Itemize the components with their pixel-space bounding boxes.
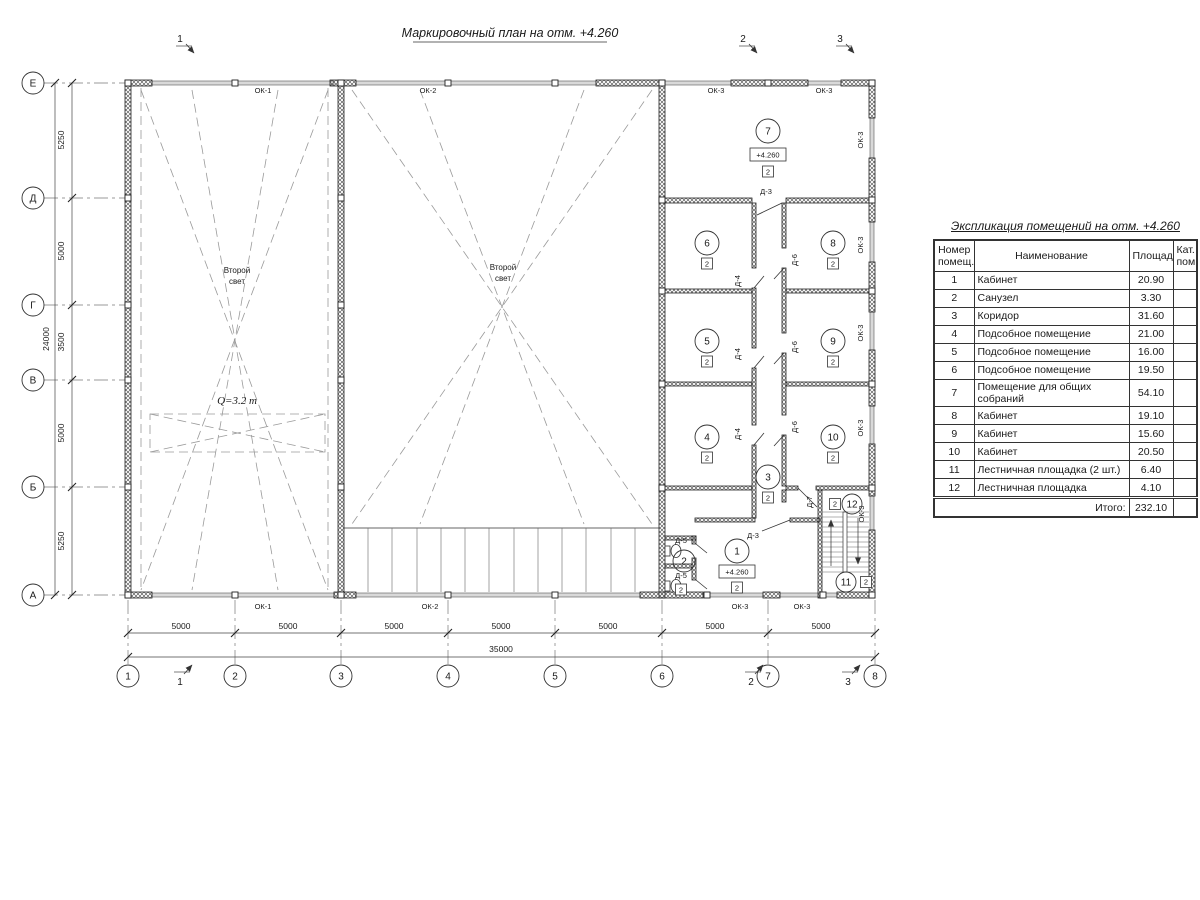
dim-label: 5000 bbox=[172, 621, 191, 631]
window-label-ok2: ОК-2 bbox=[422, 602, 439, 611]
room-cat-cell bbox=[1173, 461, 1197, 479]
dim-label: 5000 bbox=[56, 241, 66, 260]
room-number: 9 bbox=[830, 337, 836, 348]
room-category: 2 bbox=[864, 578, 868, 587]
axis-label: А bbox=[30, 591, 37, 602]
room-name-cell: Помещение для общих собраний bbox=[974, 380, 1129, 407]
axis-label: 7 bbox=[765, 672, 771, 683]
window-label-ok3: ОК-3 bbox=[794, 602, 811, 611]
room-num-cell: 11 bbox=[934, 461, 974, 479]
room-category: 2 bbox=[833, 500, 837, 509]
room-cat-cell bbox=[1173, 425, 1197, 443]
room-area-cell: 31.60 bbox=[1129, 308, 1173, 326]
room-category: 2 bbox=[705, 260, 709, 269]
grid-lines bbox=[44, 83, 875, 666]
room-name-cell: Кабинет bbox=[974, 443, 1129, 461]
elevation-mark: +4.260 bbox=[756, 151, 779, 160]
room-cat-cell bbox=[1173, 326, 1197, 344]
door-label-d6: Д-6 bbox=[790, 254, 799, 266]
room-area-cell: 3.30 bbox=[1129, 290, 1173, 308]
col-header-number: Номер помещ. bbox=[934, 240, 974, 272]
room-name-cell: Санузел bbox=[974, 290, 1129, 308]
second-light-label: Второй bbox=[224, 266, 250, 275]
section-mark-label: 2 bbox=[740, 34, 746, 45]
room-category: 2 bbox=[705, 358, 709, 367]
total-cat-cell bbox=[1173, 498, 1197, 518]
window-label-ok3: ОК-3 bbox=[856, 325, 865, 342]
dim-label: 5250 bbox=[56, 130, 66, 149]
axis-label: Е bbox=[30, 79, 37, 90]
room-num-cell: 4 bbox=[934, 326, 974, 344]
dim-label: 5250 bbox=[56, 531, 66, 550]
room-name-cell: Коридор bbox=[974, 308, 1129, 326]
dim-total-label: 35000 bbox=[489, 644, 513, 654]
door-label-d4: Д-4 bbox=[733, 275, 742, 287]
section-mark-label: 2 bbox=[748, 677, 754, 688]
second-light-label: Второй bbox=[490, 263, 516, 272]
axis-label: 6 bbox=[659, 672, 665, 683]
table-row: 6Подсобное помещение19.50 bbox=[934, 362, 1197, 380]
room-number: 12 bbox=[846, 500, 858, 511]
room-number: 11 bbox=[841, 578, 852, 589]
door-label-d3: Д-3 bbox=[760, 187, 772, 196]
table-row: 7Помещение для общих собраний54.10 bbox=[934, 380, 1197, 407]
col-header-category: Кат. пом. bbox=[1173, 240, 1197, 272]
dim-total-label: 24000 bbox=[41, 327, 51, 351]
room-name-cell: Кабинет bbox=[974, 272, 1129, 290]
total-area-cell: 232.10 bbox=[1129, 498, 1173, 518]
window-label-ok3: ОК-3 bbox=[856, 237, 865, 254]
room-cat-cell bbox=[1173, 479, 1197, 498]
section-mark-label: 1 bbox=[177, 34, 183, 45]
room-number: 8 bbox=[830, 239, 836, 250]
room-area-cell: 19.50 bbox=[1129, 362, 1173, 380]
axis-label: 5 bbox=[552, 672, 558, 683]
table-row: 4Подсобное помещение21.00 bbox=[934, 326, 1197, 344]
dim-label: 5000 bbox=[56, 423, 66, 442]
room-category: 2 bbox=[679, 586, 683, 595]
table-row: 10Кабинет20.50 bbox=[934, 443, 1197, 461]
window-label-ok1: ОК-1 bbox=[255, 86, 272, 95]
room-name-cell: Лестничная площадка (2 шт.) bbox=[974, 461, 1129, 479]
room-num-cell: 1 bbox=[934, 272, 974, 290]
room-category: 2 bbox=[831, 454, 835, 463]
axis-label: 1 bbox=[125, 672, 131, 683]
window-label-ok3: ОК-3 bbox=[856, 420, 865, 437]
room-num-cell: 2 bbox=[934, 290, 974, 308]
room-cat-cell bbox=[1173, 407, 1197, 425]
room-area-cell: 54.10 bbox=[1129, 380, 1173, 407]
room-name-cell: Кабинет bbox=[974, 407, 1129, 425]
dim-label: 5000 bbox=[492, 621, 511, 631]
room-num-cell: 10 bbox=[934, 443, 974, 461]
room-number: 3 bbox=[765, 473, 771, 484]
room-area-cell: 6.40 bbox=[1129, 461, 1173, 479]
dim-label: 5000 bbox=[706, 621, 725, 631]
explication-table: Номер помещ. Наименование Площадь Кат. п… bbox=[933, 239, 1198, 518]
table-row: 3Коридор31.60 bbox=[934, 308, 1197, 326]
room-area-cell: 4.10 bbox=[1129, 479, 1173, 498]
table-row: 5Подсобное помещение16.00 bbox=[934, 344, 1197, 362]
room-cat-cell bbox=[1173, 272, 1197, 290]
explication-panel: Экспликация помещений на отм. +4.260 Ном… bbox=[933, 219, 1198, 518]
room-category: 2 bbox=[735, 584, 739, 593]
window-label-ok3: ОК-3 bbox=[816, 86, 833, 95]
plan-title: Маркировочный план на отм. +4.260 bbox=[402, 26, 619, 40]
room-number: 5 bbox=[704, 337, 710, 348]
room-number: 10 bbox=[827, 433, 839, 444]
dim-label: 5000 bbox=[599, 621, 618, 631]
table-row: 1Кабинет20.90 bbox=[934, 272, 1197, 290]
table-row: 12Лестничная площадка4.10 bbox=[934, 479, 1197, 498]
axis-label: В bbox=[30, 376, 37, 387]
col-header-name: Наименование bbox=[974, 240, 1129, 272]
room-name-cell: Лестничная площадка bbox=[974, 479, 1129, 498]
dim-label: 5000 bbox=[812, 621, 831, 631]
room-num-cell: 9 bbox=[934, 425, 974, 443]
room-area-cell: 20.90 bbox=[1129, 272, 1173, 290]
room-name-cell: Подсобное помещение bbox=[974, 344, 1129, 362]
room-number: 6 bbox=[704, 239, 710, 250]
second-light-label: свет bbox=[495, 274, 511, 283]
room-number: 1 bbox=[734, 547, 740, 558]
room-category: 2 bbox=[831, 260, 835, 269]
section-marks bbox=[174, 44, 860, 674]
table-row: 11Лестничная площадка (2 шт.)6.40 bbox=[934, 461, 1197, 479]
room-num-cell: 5 bbox=[934, 344, 974, 362]
door-label-d7: Д-7 bbox=[805, 496, 814, 508]
dim-label: 5000 bbox=[385, 621, 404, 631]
room-name-cell: Кабинет bbox=[974, 425, 1129, 443]
room-area-cell: 21.00 bbox=[1129, 326, 1173, 344]
door-label-d5: Д-5 bbox=[675, 536, 687, 545]
room-name-cell: Подсобное помещение bbox=[974, 362, 1129, 380]
section-mark-label: 3 bbox=[845, 677, 851, 688]
room-area-cell: 16.00 bbox=[1129, 344, 1173, 362]
section-mark-label: 3 bbox=[837, 34, 843, 45]
door-label-d6: Д-6 bbox=[790, 421, 799, 433]
bracing-dashed-lines bbox=[141, 88, 652, 592]
room-name-cell: Подсобное помещение bbox=[974, 326, 1129, 344]
platform-stripes bbox=[344, 528, 659, 592]
table-row: 9Кабинет15.60 bbox=[934, 425, 1197, 443]
window-label-ok1: ОК-1 bbox=[255, 602, 272, 611]
room-num-cell: 6 bbox=[934, 362, 974, 380]
table-row: 2Санузел3.30 bbox=[934, 290, 1197, 308]
room-category: 2 bbox=[831, 358, 835, 367]
room-area-cell: 15.60 bbox=[1129, 425, 1173, 443]
room-cat-cell bbox=[1173, 308, 1197, 326]
room-cat-cell bbox=[1173, 290, 1197, 308]
door-label-d4: Д-4 bbox=[733, 348, 742, 360]
axis-label: Г bbox=[30, 301, 36, 312]
window-label-ok2: ОК-2 bbox=[420, 86, 437, 95]
room-num-cell: 3 bbox=[934, 308, 974, 326]
axis-label: 2 bbox=[232, 672, 238, 683]
door-label-d4: Д-4 bbox=[733, 428, 742, 440]
table-header-row: Номер помещ. Наименование Площадь Кат. п… bbox=[934, 240, 1197, 272]
room-marks bbox=[673, 119, 872, 595]
room-area-cell: 19.10 bbox=[1129, 407, 1173, 425]
room-category: 2 bbox=[766, 494, 770, 503]
window-label-ok3: ОК-3 bbox=[708, 86, 725, 95]
section-mark-label: 1 bbox=[177, 677, 183, 688]
door-label-d3: Д-3 bbox=[747, 531, 759, 540]
axis-label: Д bbox=[30, 194, 37, 205]
total-label-cell: Итого: bbox=[934, 498, 1129, 518]
room-cat-cell bbox=[1173, 344, 1197, 362]
second-light-label: свет bbox=[229, 277, 245, 286]
room-cat-cell bbox=[1173, 443, 1197, 461]
table-row: 8Кабинет19.10 bbox=[934, 407, 1197, 425]
room-cat-cell bbox=[1173, 380, 1197, 407]
explication-title: Экспликация помещений на отм. +4.260 bbox=[933, 219, 1198, 233]
room-number: 2 bbox=[681, 557, 687, 568]
window-label-ok3: ОК-3 bbox=[856, 132, 865, 149]
axis-label: 8 bbox=[872, 672, 878, 683]
room-area-cell: 20.50 bbox=[1129, 443, 1173, 461]
axis-label: 4 bbox=[445, 672, 451, 683]
axis-label: Б bbox=[30, 483, 37, 494]
room-category: 2 bbox=[705, 454, 709, 463]
col-header-area: Площадь bbox=[1129, 240, 1173, 272]
room-num-cell: 8 bbox=[934, 407, 974, 425]
room-number: 4 bbox=[704, 433, 710, 444]
table-total-row: Итого:232.10 bbox=[934, 498, 1197, 518]
crane-capacity-label: Q=3.2 т bbox=[217, 395, 257, 407]
room-number: 7 bbox=[765, 127, 771, 138]
room-category: 2 bbox=[766, 168, 770, 177]
axis-label: 3 bbox=[338, 672, 344, 683]
drawing-sheet: Маркировочный план на отм. +4.260 bbox=[0, 0, 1200, 900]
dim-label: 5000 bbox=[279, 621, 298, 631]
door-label-d6: Д-6 bbox=[790, 341, 799, 353]
window-label-ok3: ОК-3 bbox=[732, 602, 749, 611]
elevation-mark: +4.260 bbox=[725, 568, 748, 577]
dim-label: 3500 bbox=[56, 332, 66, 351]
room-cat-cell bbox=[1173, 362, 1197, 380]
room-num-cell: 7 bbox=[934, 380, 974, 407]
room-num-cell: 12 bbox=[934, 479, 974, 498]
